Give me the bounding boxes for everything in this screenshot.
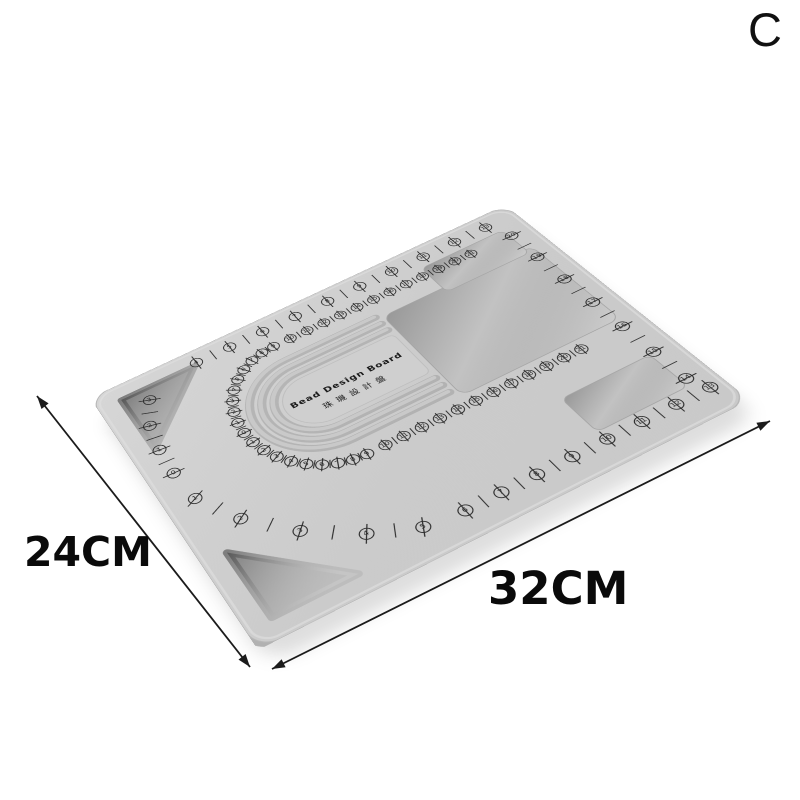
height-dimension-label: 24CM <box>24 528 152 576</box>
width-dimension-label: 32CM <box>488 562 628 615</box>
variant-label: C <box>748 2 782 57</box>
product-photo: 4567891011121332101234567891011121314151… <box>0 0 800 800</box>
